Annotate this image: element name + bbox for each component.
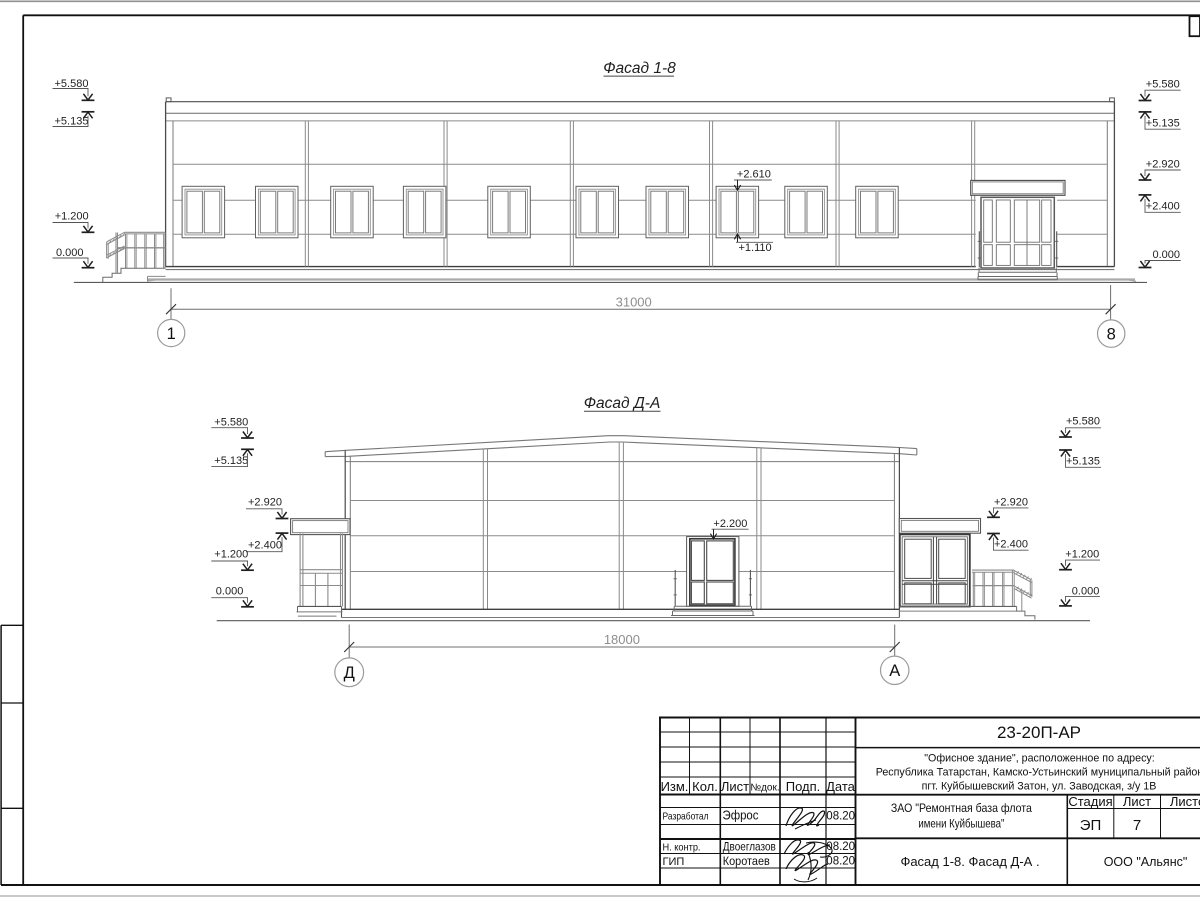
svg-text:+5.135: +5.135: [1066, 455, 1100, 467]
svg-text:+5.580: +5.580: [1146, 79, 1180, 91]
svg-text:+5.580: +5.580: [214, 417, 248, 429]
svg-text:08.20: 08.20: [826, 856, 855, 868]
svg-text:"Офисное здание", расположенно: "Офисное здание", расположенное по адрес…: [924, 753, 1154, 765]
svg-text:18000: 18000: [604, 632, 640, 647]
svg-text:Лист: Лист: [721, 779, 749, 794]
svg-text:Подп.: Подп.: [786, 779, 821, 794]
svg-text:8: 8: [1107, 326, 1116, 344]
svg-text:08.20: 08.20: [826, 811, 855, 823]
svg-text:Фасад 1-8: Фасад 1-8: [603, 60, 676, 77]
svg-text:0.000: 0.000: [1153, 249, 1181, 261]
svg-text:0.000: 0.000: [56, 247, 84, 259]
svg-text:+2.200: +2.200: [713, 518, 747, 530]
svg-text:Стадия: Стадия: [1068, 794, 1112, 809]
svg-text:+2.400: +2.400: [994, 539, 1028, 551]
svg-text:+1.110: +1.110: [739, 242, 772, 254]
svg-text:ЭП: ЭП: [1080, 817, 1102, 834]
svg-text:+2.400: +2.400: [1146, 201, 1180, 213]
svg-text:ЗАО "Ремонтная база флота: ЗАО "Ремонтная база флота: [891, 801, 1032, 815]
svg-text:пгт. Куйбышевский Затон, ул. З: пгт. Куйбышевский Затон, ул. Заводская, …: [922, 781, 1157, 793]
svg-text:Н. контр.: Н. контр.: [663, 841, 701, 853]
svg-text:Фасад Д-А: Фасад Д-А: [584, 395, 661, 412]
svg-text:+5.580: +5.580: [1066, 416, 1100, 428]
svg-text:+1.200: +1.200: [214, 549, 248, 561]
svg-text:+2.920: +2.920: [248, 497, 282, 509]
svg-text:Лист: Лист: [1123, 794, 1151, 809]
svg-text:1: 1: [167, 325, 176, 343]
svg-text:имени Куйбышева": имени Куйбышева": [918, 817, 1004, 831]
svg-text:ГИП: ГИП: [663, 856, 685, 868]
svg-text:+2.400: +2.400: [248, 539, 282, 551]
svg-text:Разработал: Разработал: [663, 810, 709, 822]
svg-text:+5.135: +5.135: [214, 455, 248, 467]
svg-text:0.000: 0.000: [1072, 585, 1100, 597]
svg-text:№док.: №док.: [750, 783, 779, 794]
svg-text:Кол.: Кол.: [692, 779, 718, 794]
svg-text:Фасад 1-8. Фасад Д-А .: Фасад 1-8. Фасад Д-А .: [900, 854, 1039, 869]
svg-text:Коротаев: Коротаев: [723, 854, 770, 868]
svg-text:Изм.: Изм.: [661, 779, 689, 794]
svg-text:31000: 31000: [616, 294, 652, 309]
svg-text:ООО "Альянс": ООО "Альянс": [1104, 855, 1188, 869]
svg-text:Д: Д: [344, 664, 355, 682]
svg-text:Республика Татарстан, Камско-У: Республика Татарстан, Камско-Устьинский …: [876, 767, 1200, 779]
svg-text:7: 7: [1133, 817, 1141, 834]
svg-text:+2.920: +2.920: [1146, 159, 1180, 171]
svg-text:+5.135: +5.135: [1146, 117, 1180, 129]
svg-text:+1.200: +1.200: [55, 211, 89, 223]
svg-text:23-20П-АР: 23-20П-АР: [997, 723, 1081, 742]
svg-text:Двоеглазов: Двоеглазов: [723, 840, 776, 854]
svg-text:+2.610: +2.610: [737, 168, 771, 180]
svg-text:+2.920: +2.920: [994, 497, 1028, 509]
svg-text:Листов: Листов: [1170, 794, 1200, 809]
svg-text:Эфрос: Эфрос: [723, 809, 759, 823]
svg-text:Дата: Дата: [826, 779, 856, 794]
svg-text:А: А: [889, 662, 900, 680]
svg-text:+1.200: +1.200: [1065, 549, 1099, 561]
svg-text:0.000: 0.000: [216, 586, 244, 598]
